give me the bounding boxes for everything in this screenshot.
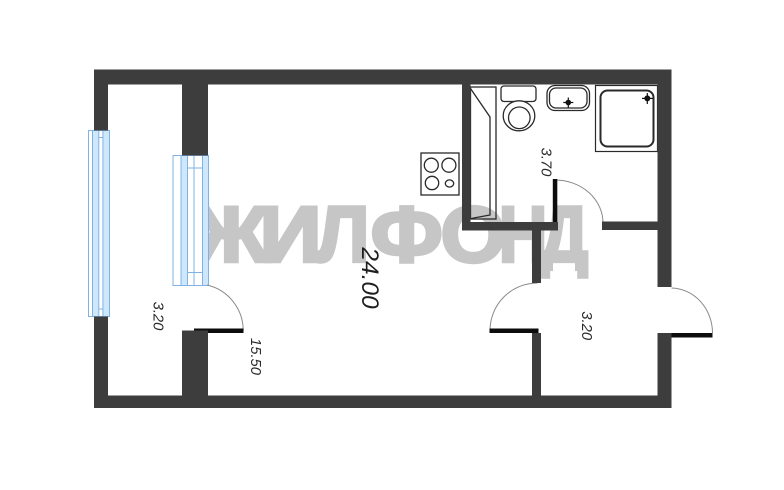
svg-text:15.50: 15.50 <box>247 338 263 376</box>
svg-text:3.20: 3.20 <box>578 311 594 341</box>
svg-text:3.20: 3.20 <box>150 302 166 332</box>
svg-text:И: И <box>260 190 322 279</box>
svg-text:24.00: 24.00 <box>356 246 383 309</box>
svg-text:3.70: 3.70 <box>538 148 554 178</box>
